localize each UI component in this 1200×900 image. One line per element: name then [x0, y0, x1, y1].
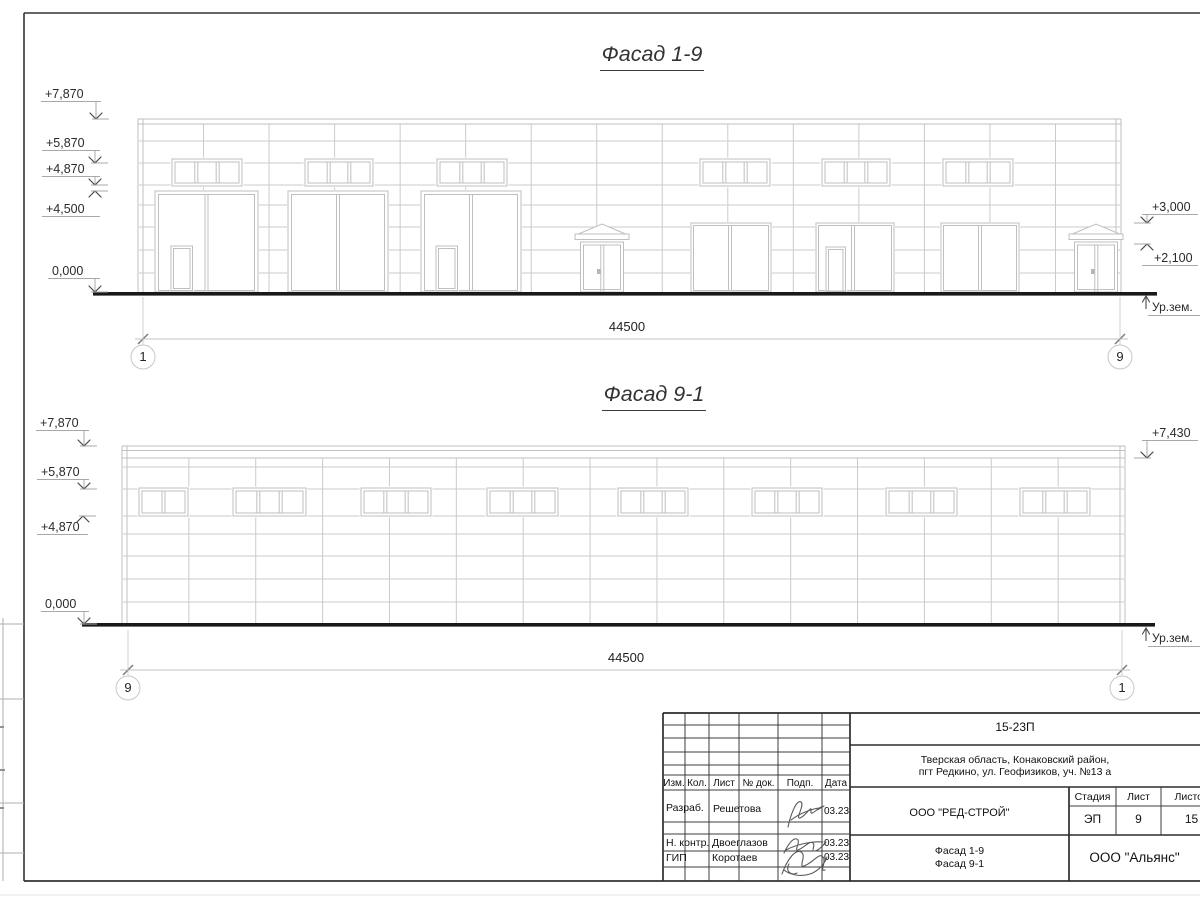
facade-9-1-dimension: 44500	[576, 650, 676, 665]
titleblock-name-korotaev: Коротаев	[712, 852, 757, 864]
facade-1-9-axis-right: 9	[1108, 345, 1132, 369]
titleblock-sheet-value: 9	[1116, 812, 1161, 826]
elevation-label: 0,000	[52, 265, 83, 277]
titleblock-sheet-header: Лист	[1116, 791, 1161, 803]
titleblock-role-gip: ГИП	[666, 852, 687, 864]
facade-1-9-axis-left: 1	[131, 345, 155, 369]
titleblock-address-line2: пгт Редкино, ул. Геофизиков, уч. №13 а	[853, 766, 1177, 778]
elevation-label: +7,870	[45, 88, 84, 100]
facade-9-1-title: Фасад 9-1	[539, 382, 769, 411]
titleblock-subject-line2: Фасад 9-1	[850, 858, 1069, 870]
elevation-label: +4,870	[46, 163, 85, 175]
titleblock-org: ООО "РЕД-СТРОЙ"	[850, 807, 1069, 819]
elevation-label: +2,100	[1154, 252, 1193, 264]
facade-9-1-ground-label: Ур.зем.	[1152, 631, 1193, 645]
drawing-sheet: { "sheet_code_note": "architectural faca…	[0, 0, 1200, 900]
titleblock-col-ndok: № док.	[739, 778, 778, 789]
titleblock-role-razrab: Разраб.	[666, 802, 704, 814]
titleblock-date-nkontr: 03.23	[823, 838, 850, 849]
titleblock-sheets-value: 15	[1161, 812, 1200, 826]
facade-1-9-title: Фасад 1-9	[537, 42, 767, 71]
titleblock-stage-header: Стадия	[1069, 791, 1116, 803]
titleblock-firm: ООО "Альянс"	[1069, 850, 1200, 865]
titleblock-doc-code: 15-23П	[850, 720, 1180, 734]
titleblock-date-gip: 03.23	[823, 852, 850, 863]
facade-1-9-ground-label: Ур.зем.	[1152, 300, 1193, 314]
titleblock-name-dvoeglazov: Двоеглазов	[712, 837, 768, 849]
elevation-label: +5,870	[46, 137, 85, 149]
elevation-label: +5,870	[41, 466, 80, 478]
elevation-label: 0,000	[45, 598, 76, 610]
titleblock-address-line1: Тверская область, Конаковский район,	[853, 754, 1177, 766]
titleblock-sheets-header: Листов	[1161, 791, 1200, 803]
titleblock-date-razrab: 03.23	[823, 806, 850, 817]
titleblock-col-kol: Кол.	[685, 778, 709, 789]
facade-1-9-dimension: 44500	[577, 319, 677, 334]
titleblock-role-nkontr: Н. контр.	[666, 837, 709, 849]
titleblock-col-izm: Изм.	[663, 778, 685, 789]
facade-9-1-axis-left: 9	[116, 676, 140, 700]
elevation-label: +7,870	[40, 417, 79, 429]
titleblock-name-reshetova: Решетова	[713, 803, 761, 815]
elevation-label: +4,870	[41, 521, 80, 533]
elevation-label: +4,500	[46, 203, 85, 215]
titleblock-col-data: Дата	[822, 778, 850, 789]
titleblock-col-list: Лист	[709, 778, 739, 789]
elevation-label: +7,430	[1152, 427, 1191, 439]
facade-9-1-axis-right: 1	[1110, 676, 1134, 700]
titleblock-subject-line1: Фасад 1-9	[850, 845, 1069, 857]
titleblock-stage-value: ЭП	[1069, 812, 1116, 826]
titleblock-col-podp: Подп.	[778, 778, 822, 789]
elevation-label: +3,000	[1152, 201, 1191, 213]
